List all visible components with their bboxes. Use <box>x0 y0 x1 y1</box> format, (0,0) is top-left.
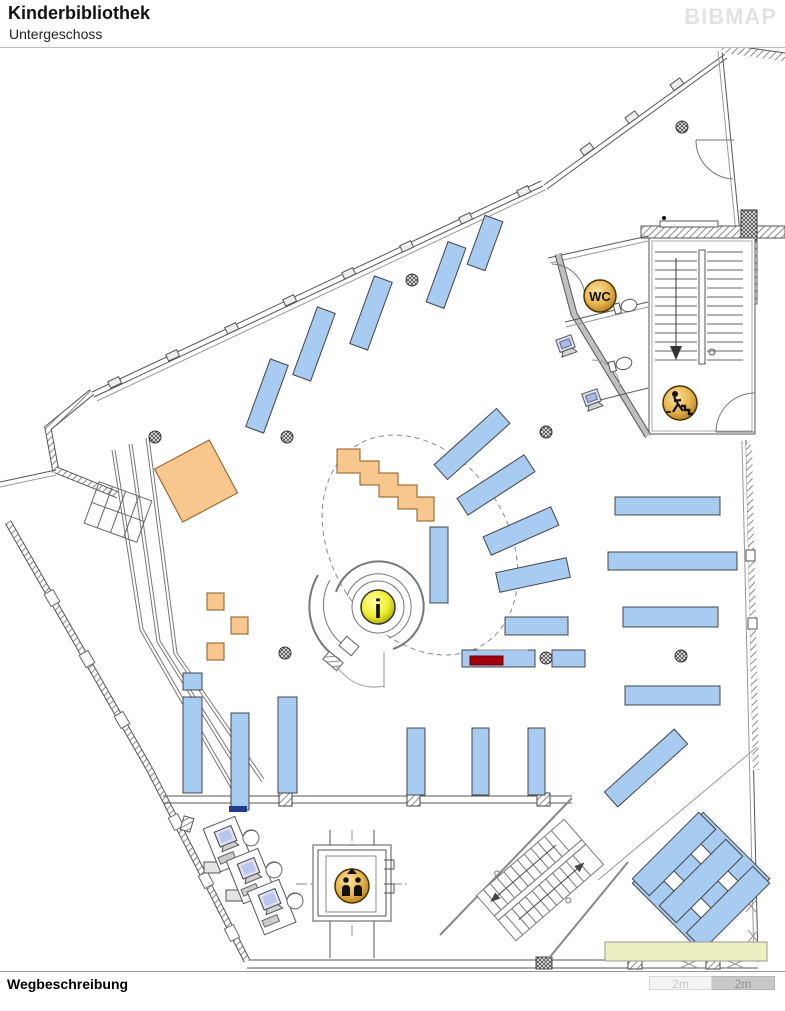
page-footer: Wegbeschreibung 2m 2m <box>0 971 785 1011</box>
svg-text:i: i <box>374 594 382 624</box>
stairs-icon[interactable] <box>663 386 697 420</box>
glazed-north-wall <box>92 54 727 401</box>
elevator-icon[interactable] <box>335 868 369 903</box>
bibmap-logo: BIBMAP <box>684 4 777 30</box>
toilet <box>608 356 633 374</box>
orange-tables <box>207 593 248 660</box>
wc-room <box>548 236 648 436</box>
wall-marker <box>229 806 247 812</box>
svg-text:WC: WC <box>589 289 611 304</box>
columns <box>149 121 688 664</box>
washbasin <box>582 389 603 411</box>
orange-step-seating <box>337 449 434 521</box>
wc-icon[interactable]: WC <box>584 280 616 312</box>
page-header: Kinderbibliothek Untergeschoss BIBMAP <box>0 0 785 48</box>
floor-label: Untergeschoss <box>9 26 102 42</box>
waydescription-link[interactable]: Wegbeschreibung <box>7 976 128 992</box>
scale-segment-2: 2m <box>712 976 775 990</box>
floorplan-map[interactable]: WC i <box>0 48 785 971</box>
highlighted-shelf[interactable] <box>470 656 503 665</box>
info-icon[interactable]: i <box>361 590 395 624</box>
east-wall <box>718 48 785 962</box>
washbasin <box>556 335 577 357</box>
oval-area <box>282 398 558 692</box>
window-mullions <box>108 78 684 388</box>
bench-yellow <box>605 942 767 961</box>
stairwell-south <box>440 798 628 963</box>
orange-podium <box>155 440 238 522</box>
map-scale-bar: 2m 2m <box>649 976 775 990</box>
library-title: Kinderbibliothek <box>8 3 150 24</box>
scale-segment-1: 2m <box>649 976 712 990</box>
info-desk <box>309 561 423 688</box>
